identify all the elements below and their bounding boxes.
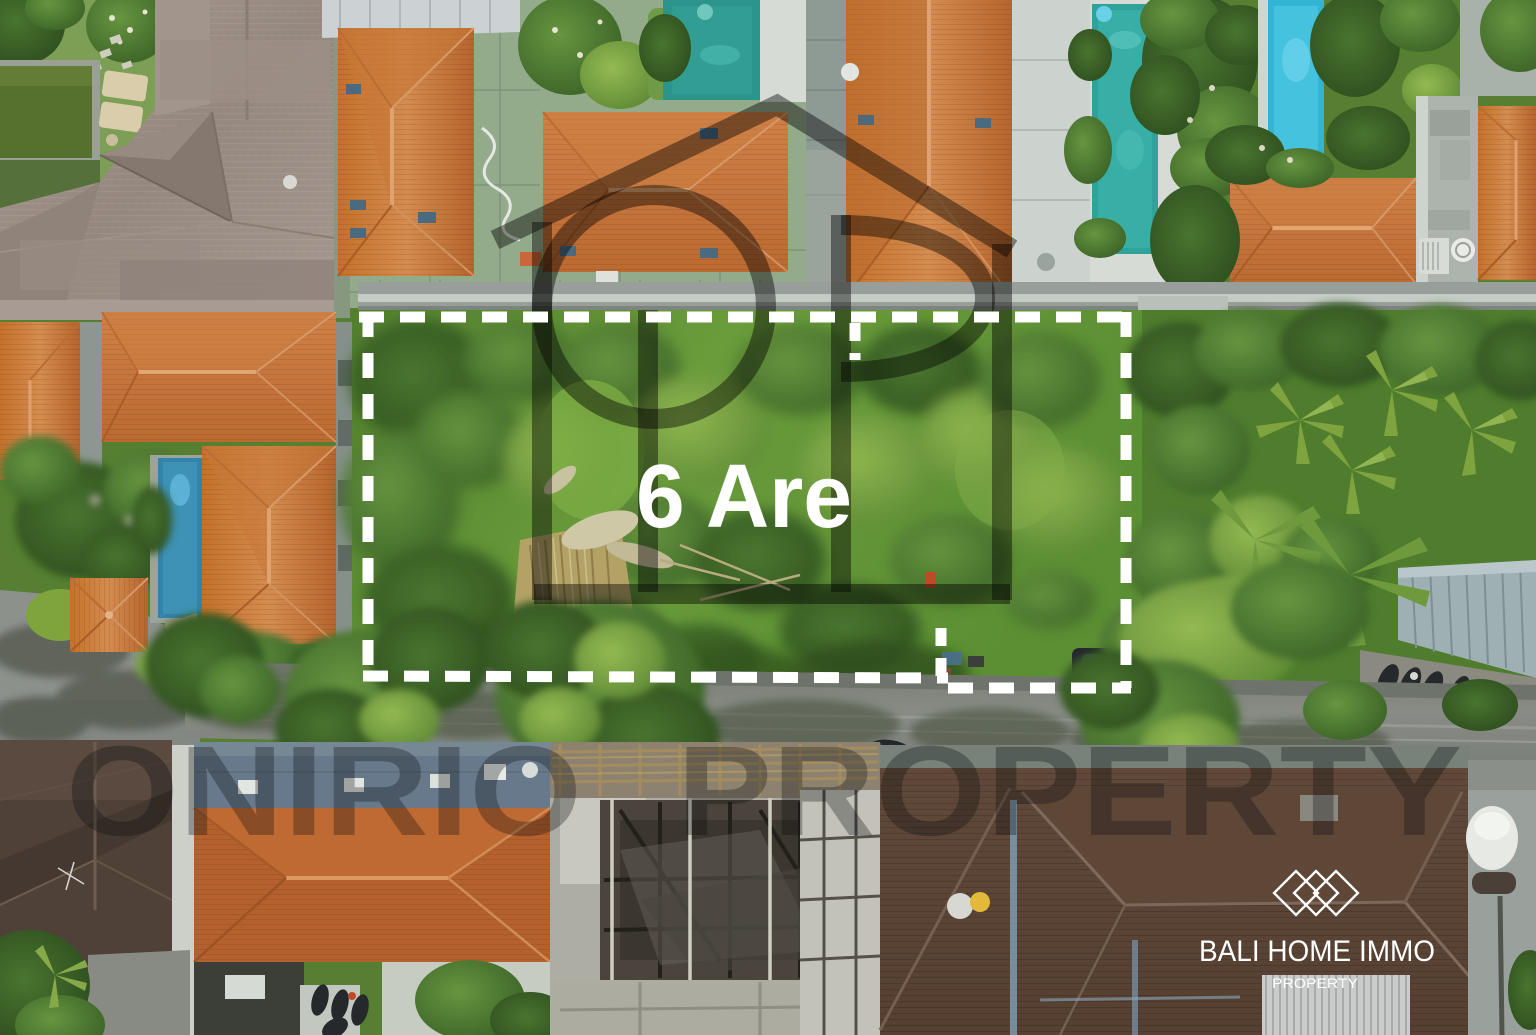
svg-text:ONIRIO: ONIRIO xyxy=(66,720,582,863)
svg-text:PROPERTY: PROPERTY xyxy=(1272,976,1358,991)
svg-text:PROPERTY: PROPERTY xyxy=(677,720,1462,863)
svg-text:BALI HOME IMMO: BALI HOME IMMO xyxy=(1199,935,1435,968)
svg-text:6 Are: 6 Are xyxy=(636,447,852,547)
